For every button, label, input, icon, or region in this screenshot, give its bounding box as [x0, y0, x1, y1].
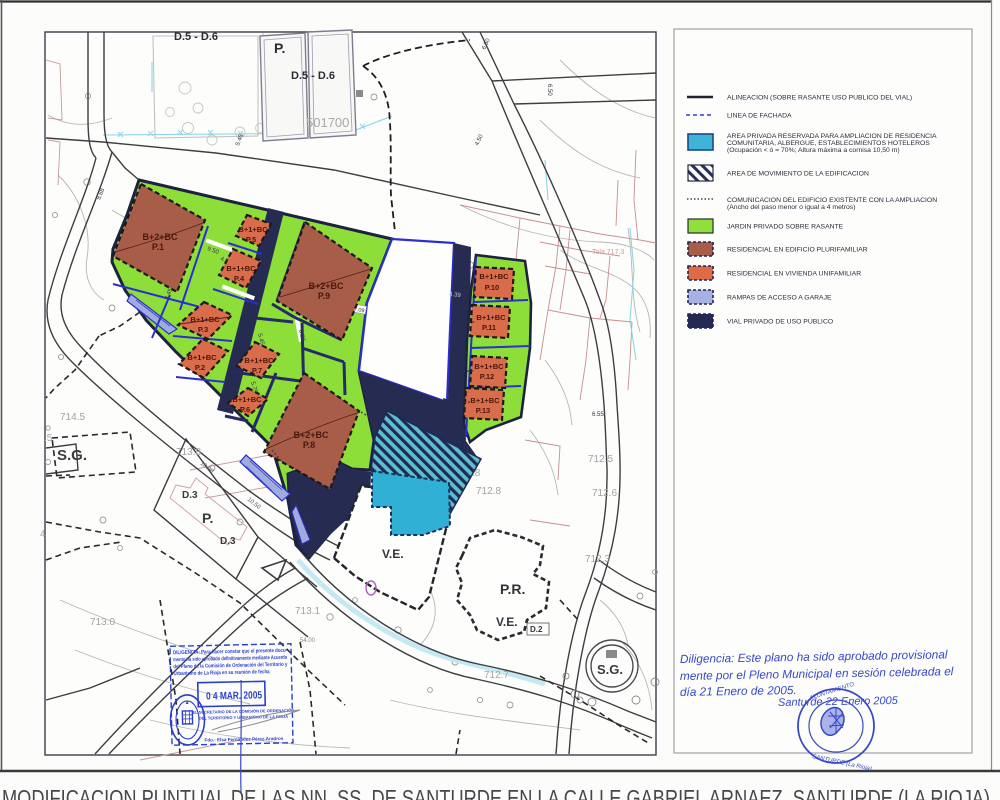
svg-text:AREA DE MOVIMIENTO DE LA EDIFI: AREA DE MOVIMIENTO DE LA EDIFICACION	[727, 171, 869, 178]
svg-text:P.10: P.10	[485, 283, 499, 292]
svg-text:COMUNICACION DEL EDIFICIO EXIS: COMUNICACION DEL EDIFICIO EXISTENTE CON …	[727, 197, 937, 204]
svg-text:6.50: 6.50	[546, 84, 552, 96]
svg-text:P.2: P.2	[195, 363, 205, 372]
svg-text:501700: 501700	[306, 115, 349, 130]
svg-text:6.55: 6.55	[592, 412, 604, 418]
svg-text:P.5: P.5	[246, 235, 256, 244]
svg-text:712.3: 712.3	[585, 554, 610, 565]
svg-text:RESIDENCIAL EN EDIFICIO PLURIF: RESIDENCIAL EN EDIFICIO PLURIFAMILIAR	[727, 247, 868, 254]
svg-text:V.E.: V.E.	[496, 615, 518, 629]
svg-text:P.3: P.3	[198, 325, 208, 334]
svg-text:B+1+BC: B+1+BC	[476, 313, 506, 322]
svg-text:P.: P.	[202, 510, 213, 526]
svg-text:0 4 MAR. 2005: 0 4 MAR. 2005	[206, 689, 262, 702]
svg-text:LINEA DE FACHADA: LINEA DE FACHADA	[727, 113, 792, 120]
svg-text:713.8: 713.8	[176, 447, 201, 458]
svg-text:B+1+BC: B+1+BC	[470, 396, 500, 405]
svg-text:B+1+BC: B+1+BC	[190, 315, 220, 324]
svg-text:P.7: P.7	[252, 366, 262, 375]
svg-text:D.5 - D.6: D.5 - D.6	[174, 31, 218, 43]
svg-text:713.0: 713.0	[90, 617, 115, 628]
svg-text:COMUNITARIA, ALBERGUE, ESTABLE: COMUNITARIA, ALBERGUE, ESTABLECIMIENTOS …	[727, 140, 930, 147]
svg-text:712.7: 712.7	[484, 670, 509, 681]
svg-text:B+1+BC: B+1+BC	[244, 356, 274, 365]
svg-text:P.13: P.13	[476, 406, 490, 415]
svg-text:D.5 - D.6: D.5 - D.6	[291, 70, 335, 82]
svg-text:B+1+BC: B+1+BC	[474, 362, 504, 371]
svg-text:P.11: P.11	[482, 323, 496, 332]
svg-text:B+1+BC: B+1+BC	[226, 264, 256, 273]
svg-text:4: 4	[40, 529, 46, 540]
svg-text:Santurde 22 Enero 2005: Santurde 22 Enero 2005	[778, 695, 899, 709]
svg-text:(Ocupación < ó = 70%; Altura m: (Ocupación < ó = 70%; Altura máxima a co…	[727, 147, 900, 154]
svg-text:B+1+BC: B+1+BC	[232, 395, 262, 404]
svg-text:714.5: 714.5	[60, 412, 85, 423]
svg-text:P.12: P.12	[480, 372, 494, 381]
svg-text:RAMPAS DE ACCESO A GARAJE: RAMPAS DE ACCESO A GARAJE	[727, 295, 832, 302]
svg-text:V.E.: V.E.	[382, 547, 404, 561]
svg-text:712.6: 712.6	[592, 488, 617, 499]
svg-text:RESIDENCIAL EN VIVIENDA UNIFAM: RESIDENCIAL EN VIVIENDA UNIFAMILIAR	[727, 271, 861, 278]
svg-text:D.3: D.3	[220, 536, 236, 547]
svg-text:P.8: P.8	[303, 440, 315, 450]
svg-text:P.1: P.1	[152, 242, 164, 252]
svg-text:4.39: 4.39	[449, 292, 462, 299]
svg-text:P.R.: P.R.	[500, 581, 525, 597]
svg-text:713.1: 713.1	[295, 606, 320, 617]
svg-text:712.8: 712.8	[476, 486, 501, 497]
svg-text:D.3: D.3	[182, 490, 198, 501]
svg-text:ALINEACION (SOBRE RASANTE USO: ALINEACION (SOBRE RASANTE USO PUBLICO DE…	[727, 95, 912, 102]
svg-text:B+1+BC: B+1+BC	[479, 272, 509, 281]
svg-text:MODIFICACION PUNTUAL DE LAS NN: MODIFICACION PUNTUAL DE LAS NN. SS. DE S…	[2, 785, 990, 800]
svg-text:S.G.: S.G.	[57, 447, 87, 464]
svg-text:B+1+BC: B+1+BC	[238, 225, 268, 234]
svg-text:P.4: P.4	[234, 274, 245, 283]
svg-text:B+2+BC: B+2+BC	[142, 232, 178, 242]
svg-text:Tola 717.3: Tola 717.3	[592, 249, 624, 256]
svg-text:P.: P.	[274, 40, 285, 56]
svg-text:B+1+BC: B+1+BC	[187, 353, 217, 362]
svg-text:AREA PRIVADA RESERVADA PARA AM: AREA PRIVADA RESERVADA PARA AMPLIACION D…	[727, 133, 937, 140]
svg-text:VIAL PRIVADO DE USO PUBLICO: VIAL PRIVADO DE USO PUBLICO	[727, 319, 833, 326]
svg-text:P.6: P.6	[240, 405, 250, 414]
svg-text:P.9: P.9	[318, 291, 330, 301]
svg-text:712.5: 712.5	[588, 454, 613, 465]
svg-text:(Ancho del paso menor o igual: (Ancho del paso menor o igual a 4 metros…	[727, 204, 855, 211]
svg-text:D.2: D.2	[530, 625, 543, 634]
svg-text:54.00: 54.00	[300, 638, 316, 644]
svg-text:S.G.: S.G.	[597, 662, 623, 677]
svg-text:.5: .5	[44, 433, 53, 444]
svg-text:JARDIN PRIVADO SOBRE RASANTE: JARDIN PRIVADO SOBRE RASANTE	[727, 224, 844, 231]
